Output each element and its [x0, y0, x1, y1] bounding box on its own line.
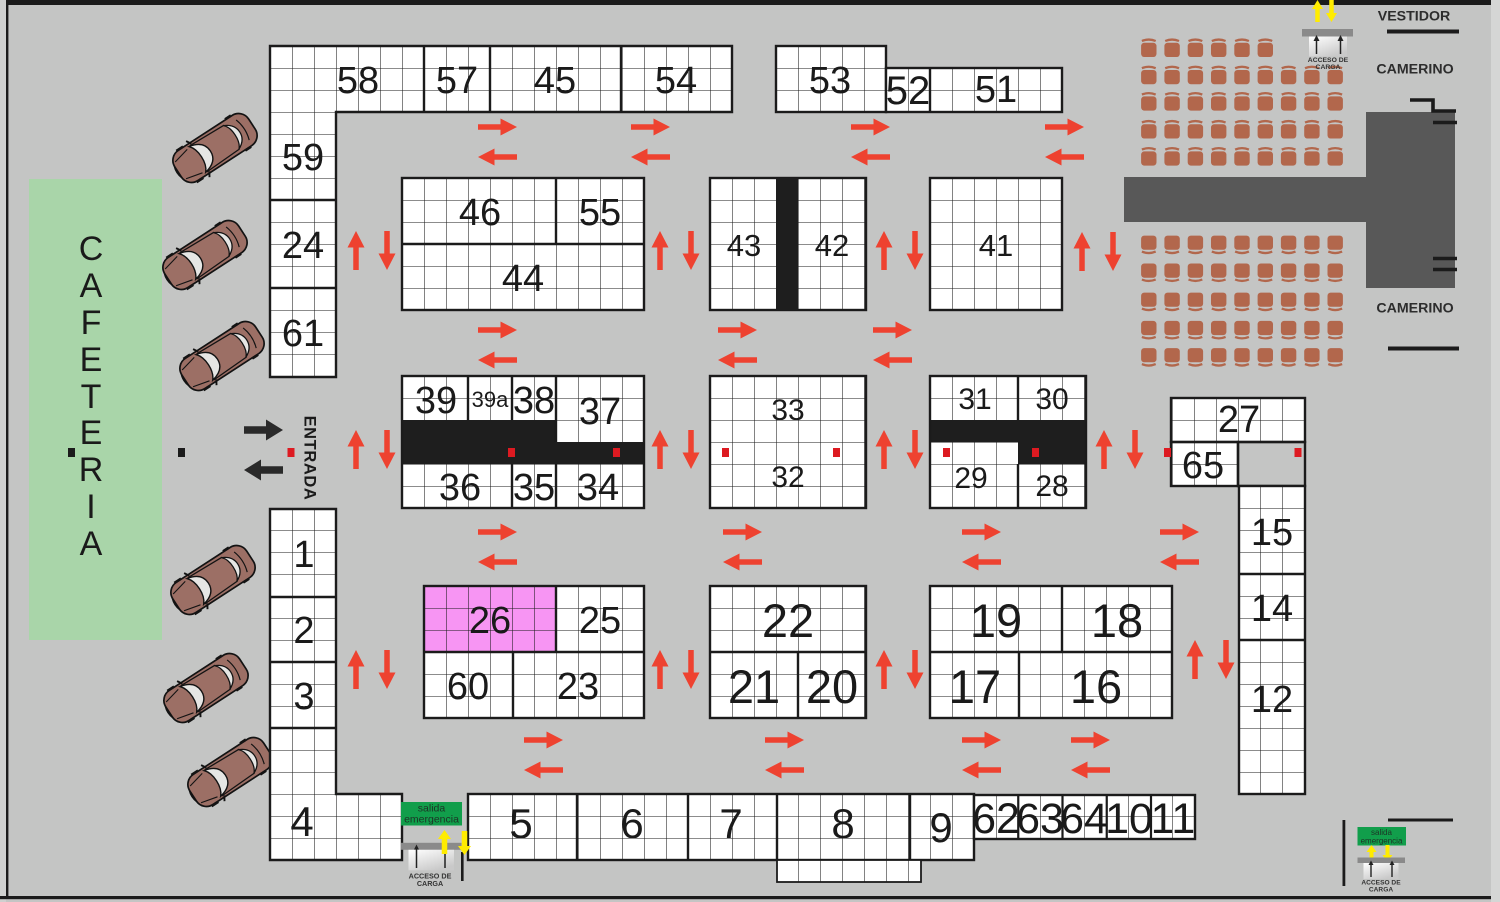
svg-text:51: 51: [975, 69, 1017, 111]
svg-text:24: 24: [282, 225, 324, 267]
svg-text:14: 14: [1251, 588, 1293, 630]
svg-text:37: 37: [579, 391, 621, 433]
svg-text:60: 60: [447, 666, 489, 708]
svg-text:33: 33: [771, 394, 804, 427]
svg-text:10: 10: [1105, 795, 1153, 843]
svg-text:9: 9: [929, 804, 952, 851]
svg-text:25: 25: [579, 600, 621, 642]
svg-text:4: 4: [290, 798, 313, 845]
svg-text:34: 34: [577, 467, 619, 509]
svg-text:16: 16: [1070, 660, 1122, 713]
svg-text:53: 53: [809, 60, 851, 102]
svg-text:19: 19: [970, 594, 1022, 647]
svg-text:61: 61: [282, 313, 324, 355]
svg-text:ACCESO DE: ACCESO DE: [1361, 880, 1401, 887]
svg-text:26: 26: [469, 600, 511, 642]
svg-text:31: 31: [958, 383, 991, 416]
svg-text:39a: 39a: [472, 387, 509, 412]
svg-text:30: 30: [1035, 383, 1068, 416]
svg-text:35: 35: [513, 467, 555, 509]
svg-text:32: 32: [771, 461, 804, 494]
svg-text:39: 39: [415, 380, 457, 422]
svg-text:59: 59: [282, 137, 324, 179]
svg-text:65: 65: [1182, 445, 1224, 487]
svg-text:1: 1: [293, 534, 314, 576]
svg-text:11: 11: [1151, 795, 1196, 843]
svg-text:CARGA: CARGA: [417, 879, 443, 888]
svg-text:ENTRADA: ENTRADA: [301, 416, 319, 501]
svg-text:62: 62: [972, 795, 1020, 843]
svg-text:54: 54: [655, 60, 697, 102]
svg-text:64: 64: [1060, 795, 1108, 843]
svg-text:29: 29: [954, 462, 987, 495]
svg-text:CARGA: CARGA: [1369, 887, 1393, 894]
svg-text:12: 12: [1251, 679, 1293, 721]
svg-text:2: 2: [293, 610, 314, 652]
svg-text:8: 8: [831, 800, 854, 847]
svg-text:7: 7: [719, 800, 742, 847]
svg-text:57: 57: [436, 60, 478, 102]
svg-text:38: 38: [513, 380, 555, 422]
svg-text:15: 15: [1251, 512, 1293, 554]
svg-text:28: 28: [1035, 470, 1068, 503]
svg-text:emergencia: emergencia: [1361, 837, 1403, 846]
svg-text:23: 23: [557, 666, 599, 708]
svg-text:CAMERINO: CAMERINO: [1376, 62, 1453, 78]
svg-text:18: 18: [1091, 594, 1143, 647]
svg-text:emergencia: emergencia: [404, 814, 459, 826]
svg-text:43: 43: [727, 228, 761, 263]
svg-text:44: 44: [502, 258, 544, 300]
svg-text:6: 6: [620, 800, 643, 847]
svg-text:3: 3: [293, 676, 314, 718]
svg-text:42: 42: [815, 228, 849, 263]
svg-text:36: 36: [439, 467, 481, 509]
svg-text:63: 63: [1016, 795, 1064, 843]
svg-text:22: 22: [762, 594, 814, 647]
svg-text:27: 27: [1218, 399, 1260, 441]
svg-text:ACCESO DE: ACCESO DE: [1308, 57, 1349, 64]
svg-text:45: 45: [534, 60, 576, 102]
svg-text:41: 41: [979, 228, 1013, 263]
svg-text:55: 55: [579, 192, 621, 234]
svg-text:VESTIDOR: VESTIDOR: [1378, 9, 1451, 25]
svg-text:21: 21: [728, 660, 780, 713]
svg-text:5: 5: [509, 800, 532, 847]
svg-text:58: 58: [337, 60, 379, 102]
svg-text:CARGA: CARGA: [1316, 64, 1341, 71]
svg-text:CAMERINO: CAMERINO: [1376, 301, 1453, 317]
svg-text:46: 46: [459, 192, 501, 234]
svg-text:52: 52: [886, 69, 931, 113]
svg-text:20: 20: [806, 660, 858, 713]
svg-text:17: 17: [949, 660, 1001, 713]
